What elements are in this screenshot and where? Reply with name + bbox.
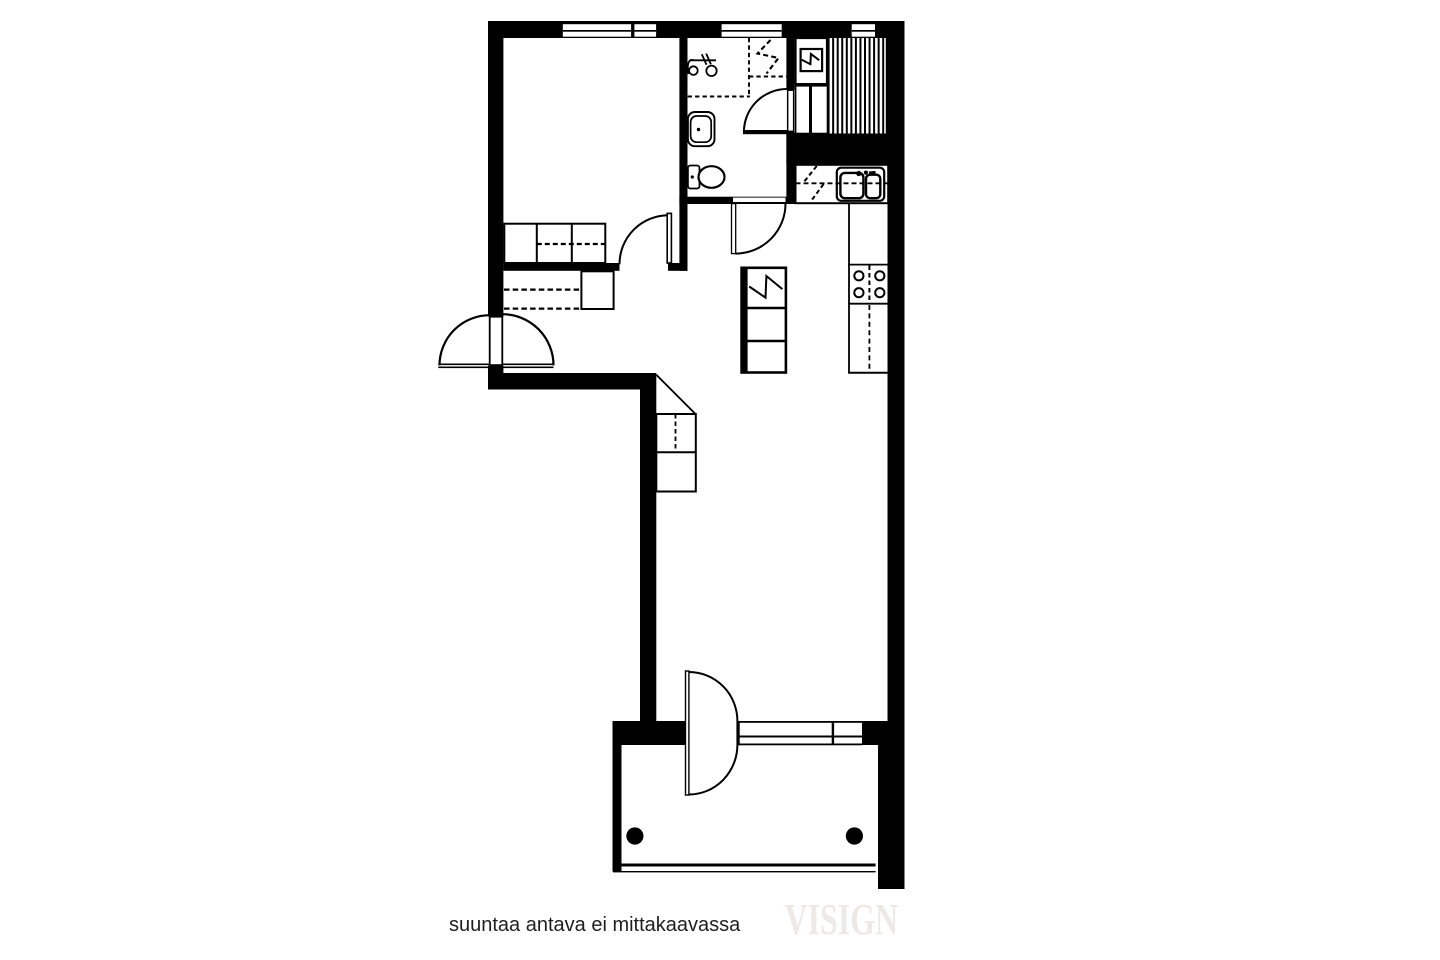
svg-text:VISIGN: VISIGN [785,894,899,944]
svg-text:suuntaa antava ei mittakaavass: suuntaa antava ei mittakaavassa [449,914,741,936]
